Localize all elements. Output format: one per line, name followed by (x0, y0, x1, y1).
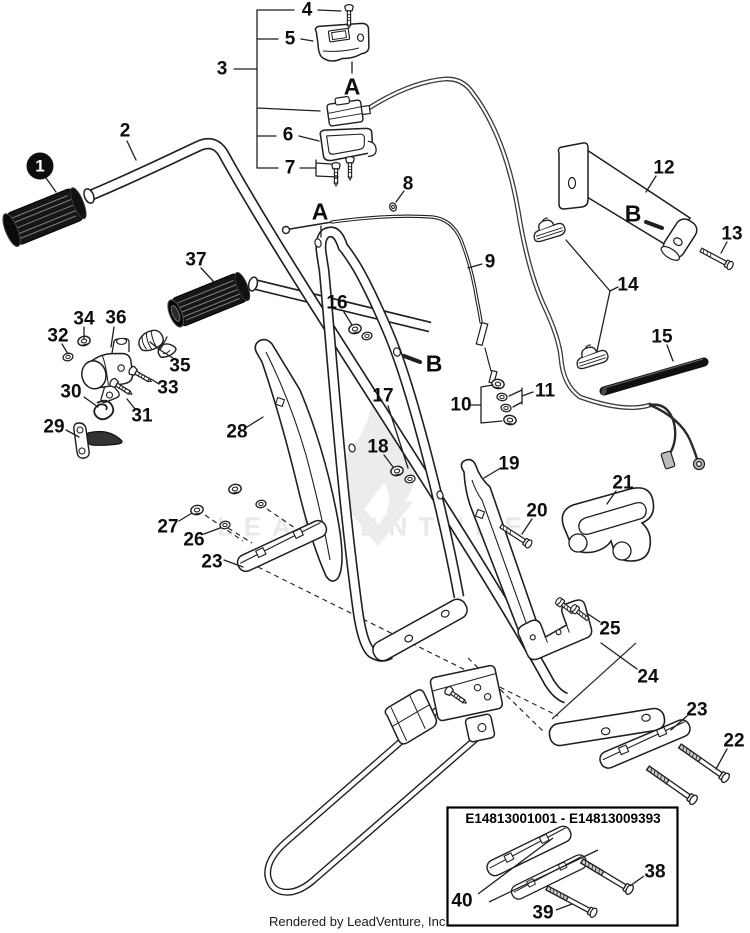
callout-11[interactable]: 11 (535, 382, 555, 401)
callout-29[interactable]: 29 (43, 418, 64, 437)
callout-23-left[interactable]: 23 (201, 553, 222, 572)
render-credit: Rendered by LeadVenture, Inc. (0, 914, 449, 929)
throttle-trigger (74, 423, 122, 458)
callout-17[interactable]: 17 (372, 387, 393, 406)
callout-27[interactable]: 27 (157, 518, 178, 537)
callout-35[interactable]: 35 (169, 357, 190, 376)
ref-letter-a-mid: A (312, 201, 329, 224)
callout-40[interactable]: 40 (451, 892, 472, 911)
callout-7[interactable]: 7 (285, 159, 296, 178)
callout-1[interactable]: 1 (27, 153, 54, 180)
callout-30[interactable]: 30 (60, 383, 81, 402)
callout-4[interactable]: 4 (302, 1, 313, 20)
switch-cap (315, 20, 372, 63)
housing-screw-7a (332, 163, 340, 186)
callout-19[interactable]: 19 (498, 455, 519, 474)
assembly-reference-line (552, 643, 636, 719)
callout-39[interactable]: 39 (532, 904, 553, 923)
handle-grip-37 (164, 271, 252, 330)
callout-23-right[interactable]: 23 (686, 701, 707, 720)
callout-24[interactable]: 24 (637, 668, 658, 687)
long-bolt-2 (645, 764, 699, 806)
callout-10[interactable]: 10 (450, 396, 471, 415)
callout-34[interactable]: 34 (73, 310, 94, 329)
ref-letter-b-mid: B (426, 353, 443, 376)
callout-13[interactable]: 13 (721, 225, 742, 244)
callout-12[interactable]: 12 (653, 159, 674, 178)
ref-letter-b-right: B (625, 203, 642, 226)
housing-screw-7b (346, 157, 354, 180)
callout-15[interactable]: 15 (651, 328, 672, 347)
serial-range-title: E14813001001 - E14813009393 (452, 811, 674, 826)
parts-diagram-page: { "footer": {"text": "Rendered by LeadVe… (0, 0, 750, 933)
grommet-8 (389, 202, 398, 212)
callout-31[interactable]: 31 (131, 407, 152, 426)
callout-26[interactable]: 26 (183, 531, 204, 550)
ref-letter-a-top: A (344, 76, 361, 99)
callout-8[interactable]: 8 (403, 175, 414, 194)
callout-38[interactable]: 38 (644, 863, 665, 882)
callout-32[interactable]: 32 (47, 327, 68, 346)
callout-37[interactable]: 37 (185, 251, 206, 270)
trigger-spring (94, 401, 113, 420)
callout-9[interactable]: 9 (485, 253, 496, 272)
callout-20[interactable]: 20 (526, 502, 547, 521)
callout-14[interactable]: 14 (617, 276, 638, 295)
callout-16[interactable]: 16 (326, 294, 347, 313)
hex-bolt-13 (699, 246, 735, 270)
handle-grip-1 (0, 185, 89, 249)
cable-clamp-lower (573, 341, 609, 369)
black-tube (600, 359, 704, 396)
strap-bracket (562, 488, 653, 561)
callout-6[interactable]: 6 (283, 126, 294, 145)
pivot-bracket-cluster (382, 665, 503, 746)
cable-clamp-upper (530, 214, 566, 242)
callout-22[interactable]: 22 (723, 732, 744, 751)
callout-36[interactable]: 36 (105, 309, 126, 328)
housing-screw-33 (128, 365, 154, 385)
callout-5[interactable]: 5 (285, 30, 296, 49)
callout-28[interactable]: 28 (226, 423, 247, 442)
callout-2[interactable]: 2 (120, 122, 131, 141)
cable-clamp-halves (136, 328, 177, 359)
callout-21[interactable]: 21 (612, 474, 633, 493)
spade-terminal (661, 451, 675, 469)
callout-33[interactable]: 33 (157, 379, 178, 398)
callout-25[interactable]: 25 (599, 620, 620, 639)
diagram-canvas (0, 0, 750, 933)
ring-terminal (694, 459, 705, 470)
callout-18[interactable]: 18 (367, 438, 388, 457)
callout-3[interactable]: 3 (217, 60, 228, 79)
